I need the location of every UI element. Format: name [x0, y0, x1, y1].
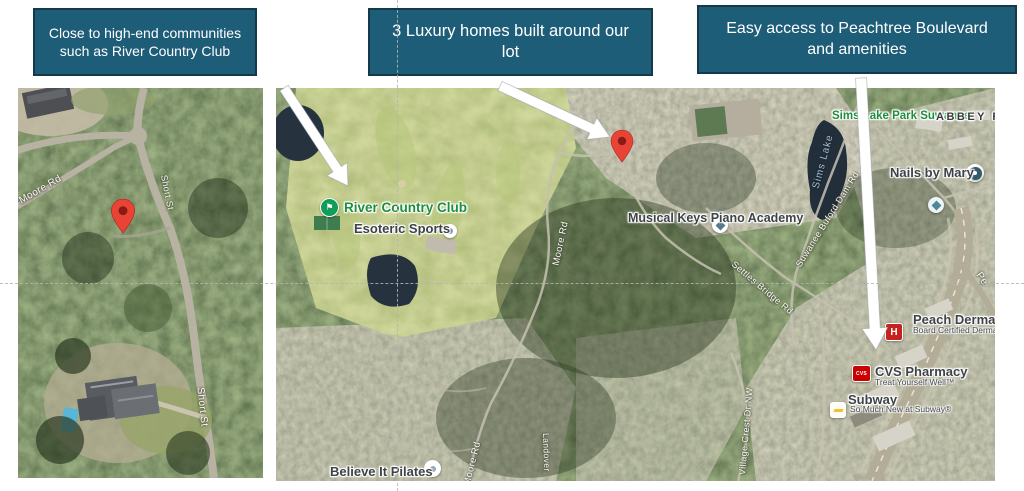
location-pin-icon	[610, 129, 634, 163]
poi-sub-subway: So Much New at Subway®	[850, 405, 951, 415]
cvs-logo-icon: CVS	[852, 365, 871, 382]
left-satellite-map: Moore Rd Short St Short St	[18, 88, 263, 478]
poi-label-esoteric-sports: Esoteric Sports	[354, 221, 450, 236]
left-map-art	[18, 88, 263, 478]
hospital-poi-icon: H	[885, 323, 903, 341]
poi-sub-peach-dermatology: Board Certified Dermatologist	[913, 326, 995, 336]
callout-line: and amenities	[807, 40, 907, 61]
golf-poi-icon: ⚑	[320, 198, 339, 217]
presentation-slide: Moore Rd Short St Short St	[0, 0, 1024, 491]
subway-logo-icon	[830, 402, 846, 418]
poi-label-sims-lake-park: Sims Lake Park Suwanee	[832, 110, 912, 123]
callout-line: such as River Country Club	[60, 42, 230, 60]
callout-peachtree-access: Easy access to Peachtree Boulevard and a…	[697, 5, 1017, 74]
right-map-art	[276, 88, 995, 481]
callout-luxury-homes: 3 Luxury homes built around our lot	[368, 8, 653, 76]
road-label-landover: Landover	[541, 433, 552, 472]
right-satellite-map: ⚑ H CVS River Country Club Esoteric Spor…	[276, 88, 995, 481]
school2-poi-icon	[928, 197, 944, 213]
callout-line: Close to high-end communities	[49, 24, 241, 42]
poi-label-pilates: Believe It Pilates	[330, 464, 433, 479]
poi-label-musical-keys: Musical Keys Piano Academy	[628, 211, 710, 225]
poi-label-abbey: ABBEY R	[936, 111, 995, 123]
poi-label-river-country-club: River Country Club	[344, 200, 467, 215]
callout-high-end-communities: Close to high-end communities such as Ri…	[33, 8, 257, 76]
callout-line: lot	[502, 42, 519, 63]
callout-line: Easy access to Peachtree Boulevard	[726, 19, 987, 40]
location-pin-icon	[110, 198, 136, 234]
golf-flag-glyph: ⚑	[325, 203, 333, 212]
poi-sub-cvs: Treat Yourself Well™	[875, 378, 954, 388]
poi-label-nails-by-mary: Nails by Mary	[890, 165, 974, 180]
callout-line: 3 Luxury homes built around our	[392, 21, 629, 42]
